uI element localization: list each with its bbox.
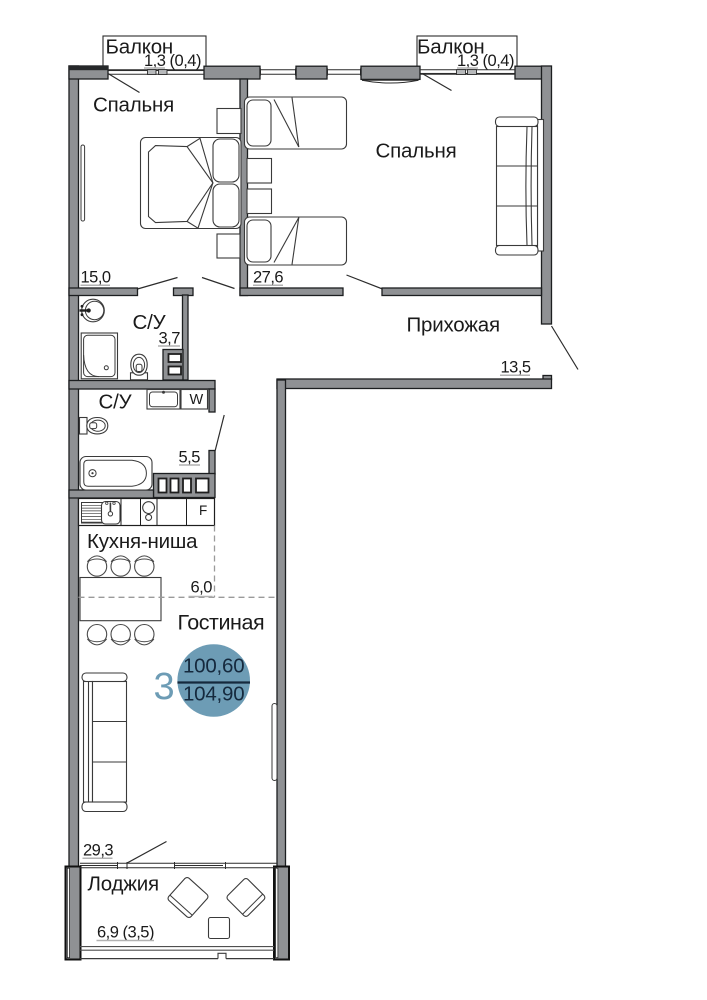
- svg-text:3: 3: [154, 666, 175, 708]
- svg-text:Гостиная: Гостиная: [178, 611, 265, 635]
- svg-text:Спальня: Спальня: [93, 94, 174, 117]
- svg-text:Кухня-ниша: Кухня-ниша: [87, 530, 198, 553]
- svg-text:3,7: 3,7: [159, 330, 181, 348]
- svg-text:F: F: [199, 503, 207, 518]
- svg-text:27,6: 27,6: [253, 269, 283, 287]
- svg-text:13,5: 13,5: [501, 359, 531, 377]
- svg-text:104,90: 104,90: [183, 683, 245, 706]
- svg-text:100,60: 100,60: [183, 655, 245, 678]
- svg-text:Лоджия: Лоджия: [88, 873, 159, 896]
- svg-text:5,5: 5,5: [179, 449, 201, 467]
- svg-text:С/У: С/У: [99, 391, 133, 414]
- svg-text:29,3: 29,3: [83, 842, 113, 860]
- svg-text:15,0: 15,0: [81, 269, 111, 287]
- svg-text:Прихожая: Прихожая: [407, 314, 500, 337]
- svg-text:6,9 (3,5): 6,9 (3,5): [97, 924, 154, 942]
- svg-text:6,0: 6,0: [191, 579, 213, 597]
- svg-text:Спальня: Спальня: [376, 140, 457, 163]
- svg-text:W: W: [190, 392, 204, 408]
